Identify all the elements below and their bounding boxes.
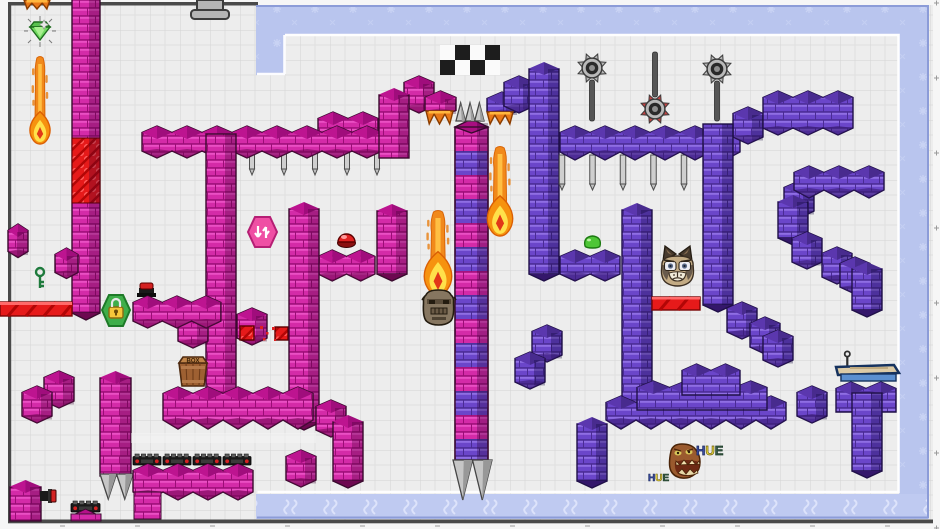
svg-text:HUE: HUE xyxy=(696,443,724,458)
svg-text:BOX: BOX xyxy=(186,359,199,365)
svg-text:HUE: HUE xyxy=(648,473,669,484)
